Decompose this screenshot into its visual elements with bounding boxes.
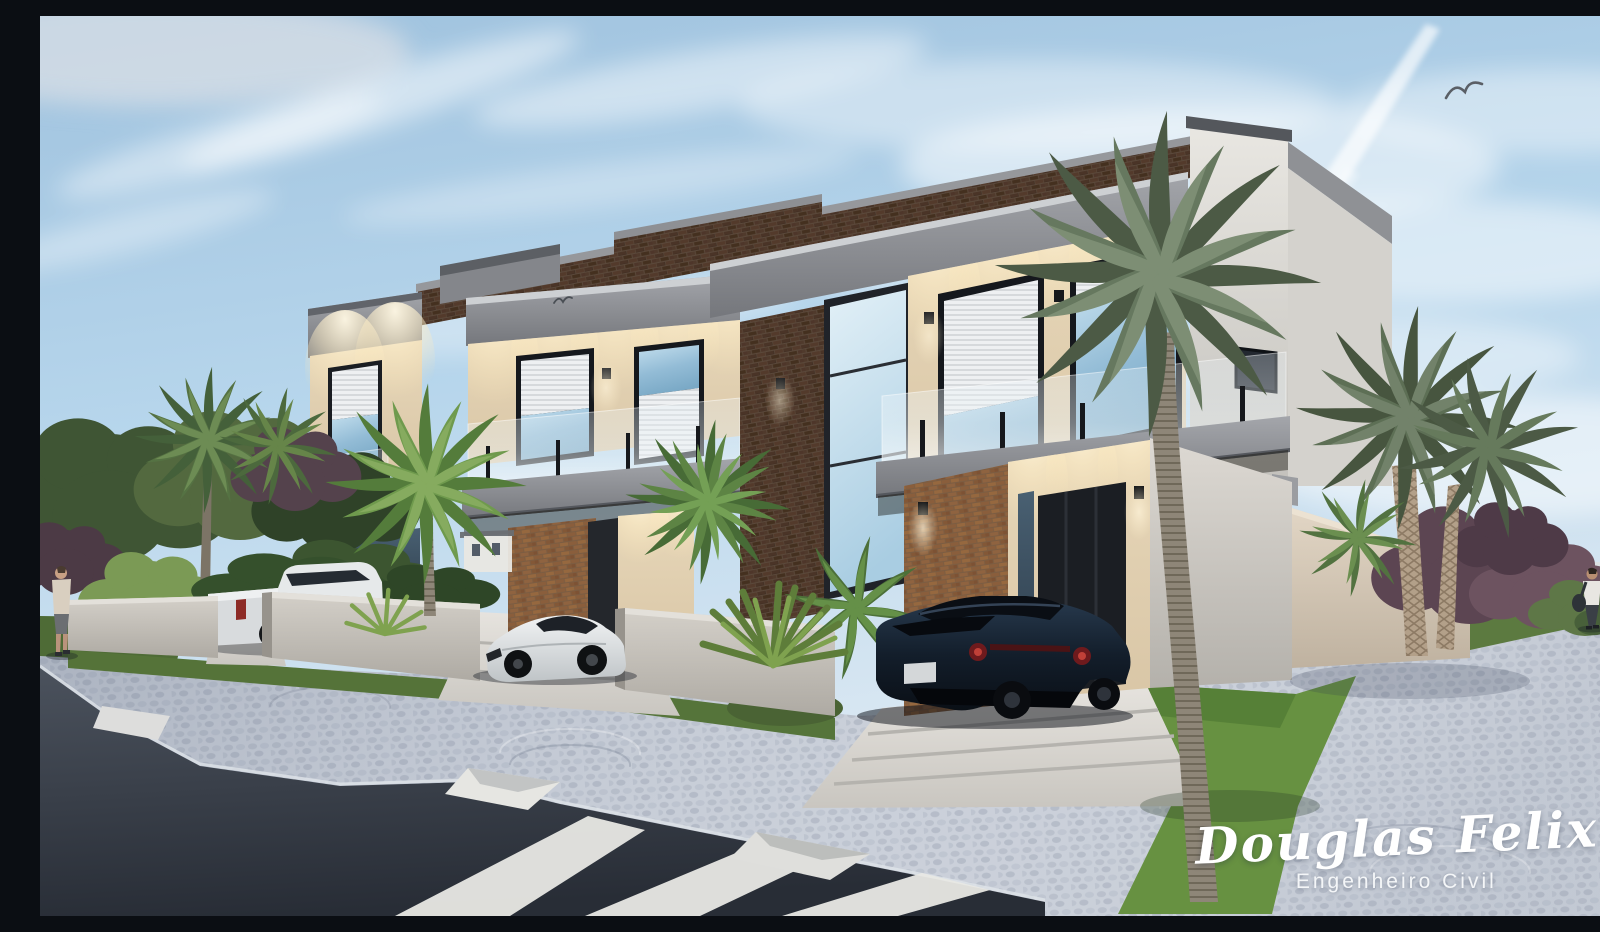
scene-canvas <box>40 16 1600 916</box>
license-plate <box>904 662 936 684</box>
wall-sconce <box>1054 290 1064 302</box>
window-shutter <box>332 365 378 420</box>
window-shutter <box>521 354 589 416</box>
distant-house <box>460 530 514 572</box>
fence-wall <box>68 596 218 658</box>
architectural-rendering: Douglas Felix Engenheiro Civil <box>40 16 1600 916</box>
